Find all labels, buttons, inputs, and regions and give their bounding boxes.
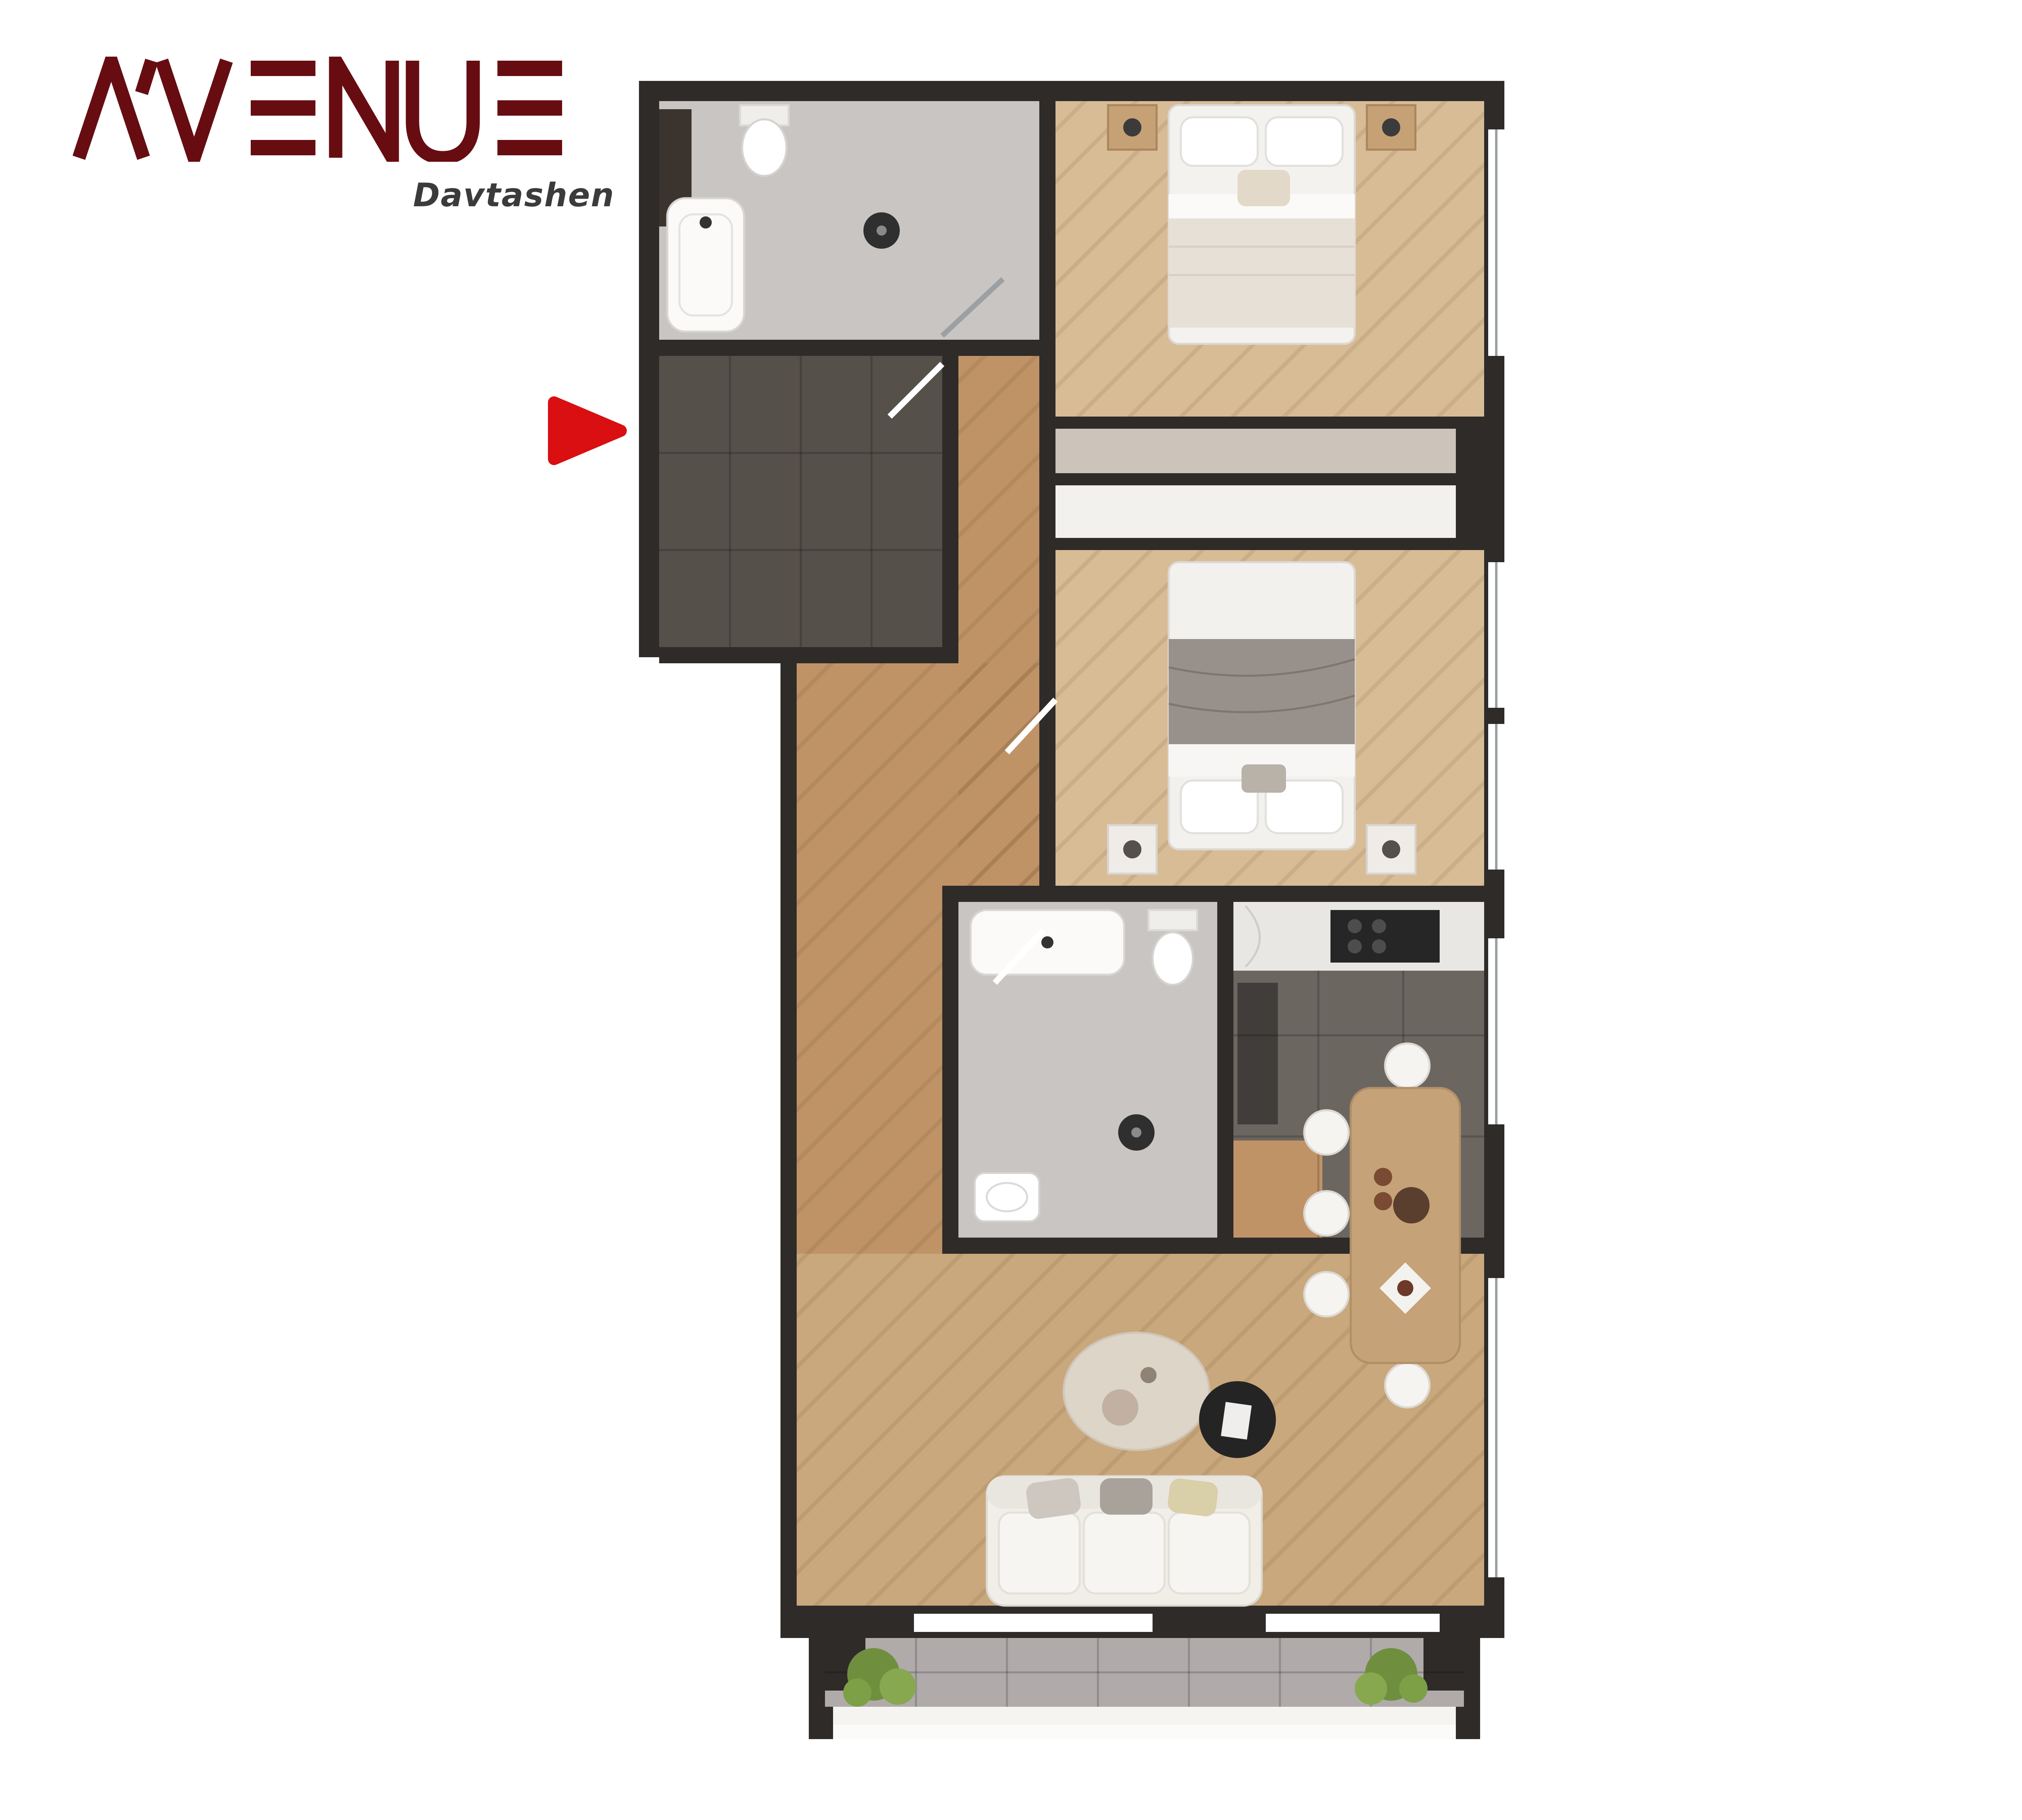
sofa (987, 1476, 1262, 1606)
brand-logo: AVENUE Davtashen (73, 57, 615, 214)
entry-marker (546, 396, 631, 469)
bed-1 (1169, 105, 1355, 344)
brand-sublabel: Davtashen (73, 176, 615, 214)
page: AVENUE Davtashen (0, 0, 2022, 1820)
apartment-floorplan (639, 81, 1504, 1739)
bed-2 (1169, 562, 1355, 849)
avenue-logo-icon (73, 57, 615, 162)
play-triangle-icon (546, 396, 631, 469)
